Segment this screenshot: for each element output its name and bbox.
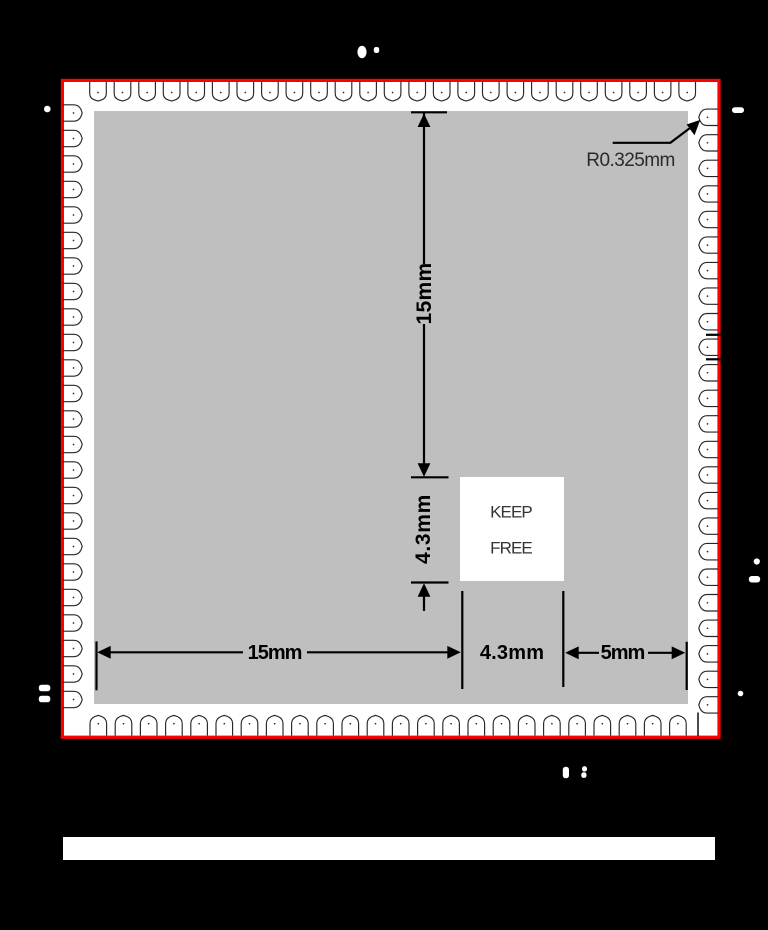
svg-text:15mm: 15mm [248, 642, 302, 664]
svg-text:5mm: 5mm [601, 642, 645, 664]
svg-text:15mm: 15mm [413, 263, 436, 325]
svg-text:FREE: FREE [490, 539, 532, 558]
svg-text:R0.325mm: R0.325mm [586, 150, 675, 171]
svg-text:4.3mm: 4.3mm [480, 642, 544, 664]
svg-text:KEEP: KEEP [490, 503, 532, 522]
svg-text:4.3mm: 4.3mm [412, 494, 435, 564]
